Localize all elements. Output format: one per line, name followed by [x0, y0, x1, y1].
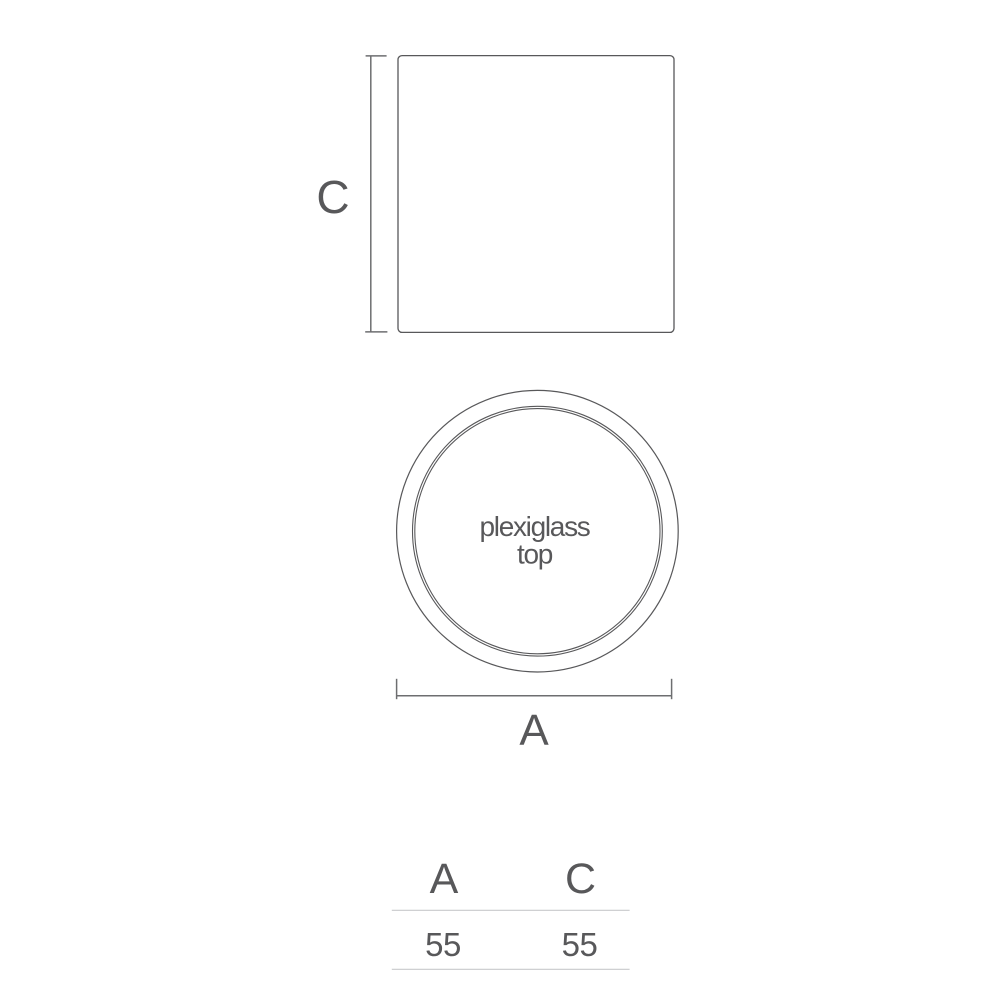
- svg-text:top: top: [517, 539, 553, 570]
- svg-text:plexiglass: plexiglass: [480, 511, 590, 542]
- svg-text:55: 55: [562, 926, 598, 963]
- svg-text:C: C: [316, 171, 349, 223]
- svg-text:A: A: [430, 855, 459, 903]
- svg-text:C: C: [565, 855, 596, 903]
- svg-text:A: A: [519, 706, 549, 755]
- svg-text:55: 55: [425, 926, 461, 963]
